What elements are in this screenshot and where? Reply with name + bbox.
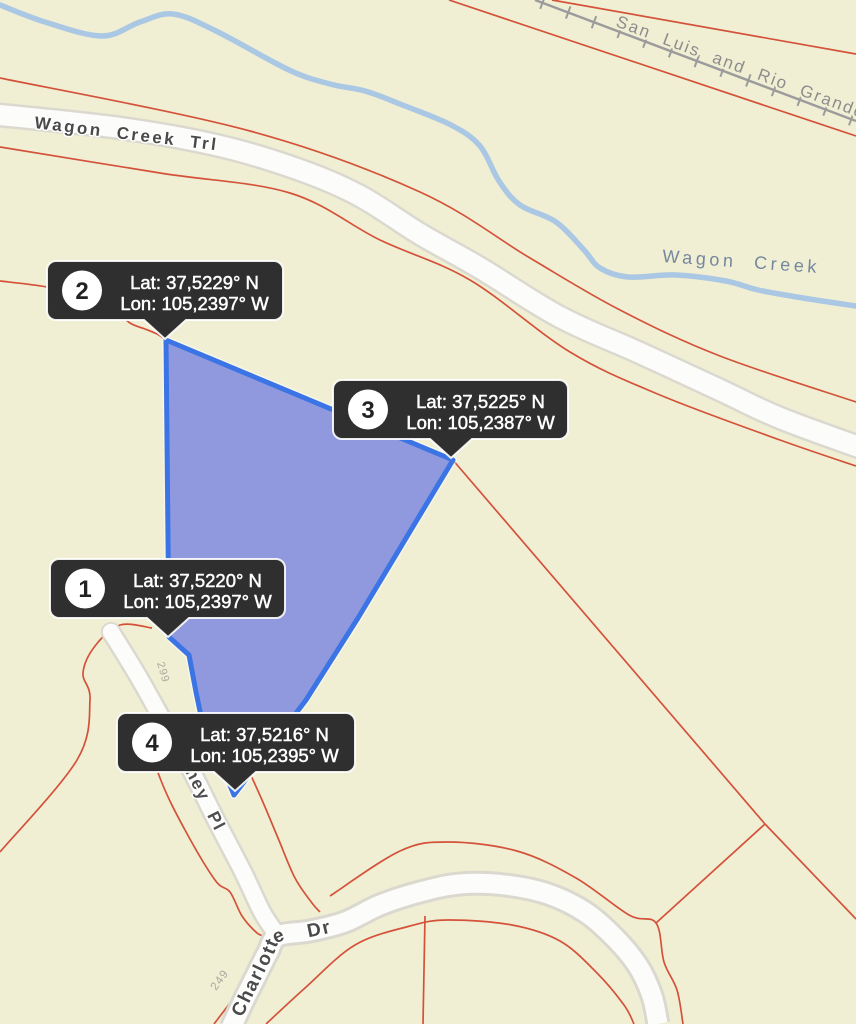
svg-text:Lat: 37,5225° N: Lat: 37,5225° N <box>416 391 545 412</box>
svg-text:Lat: 37,5216° N: Lat: 37,5216° N <box>200 724 329 745</box>
svg-text:3: 3 <box>361 397 374 424</box>
svg-text:4: 4 <box>145 730 159 757</box>
svg-text:Lon: 105,2397° W: Lon: 105,2397° W <box>120 293 269 314</box>
svg-text:Lon: 105,2387° W: Lon: 105,2387° W <box>406 412 555 433</box>
svg-text:2: 2 <box>75 278 88 305</box>
svg-text:Lat: 37,5229° N: Lat: 37,5229° N <box>130 272 259 293</box>
svg-text:1: 1 <box>78 576 91 603</box>
svg-text:Lon: 105,2395° W: Lon: 105,2395° W <box>190 745 339 766</box>
svg-text:Lat: 37,5220° N: Lat: 37,5220° N <box>133 570 262 591</box>
svg-text:Lon: 105,2397° W: Lon: 105,2397° W <box>123 591 272 612</box>
